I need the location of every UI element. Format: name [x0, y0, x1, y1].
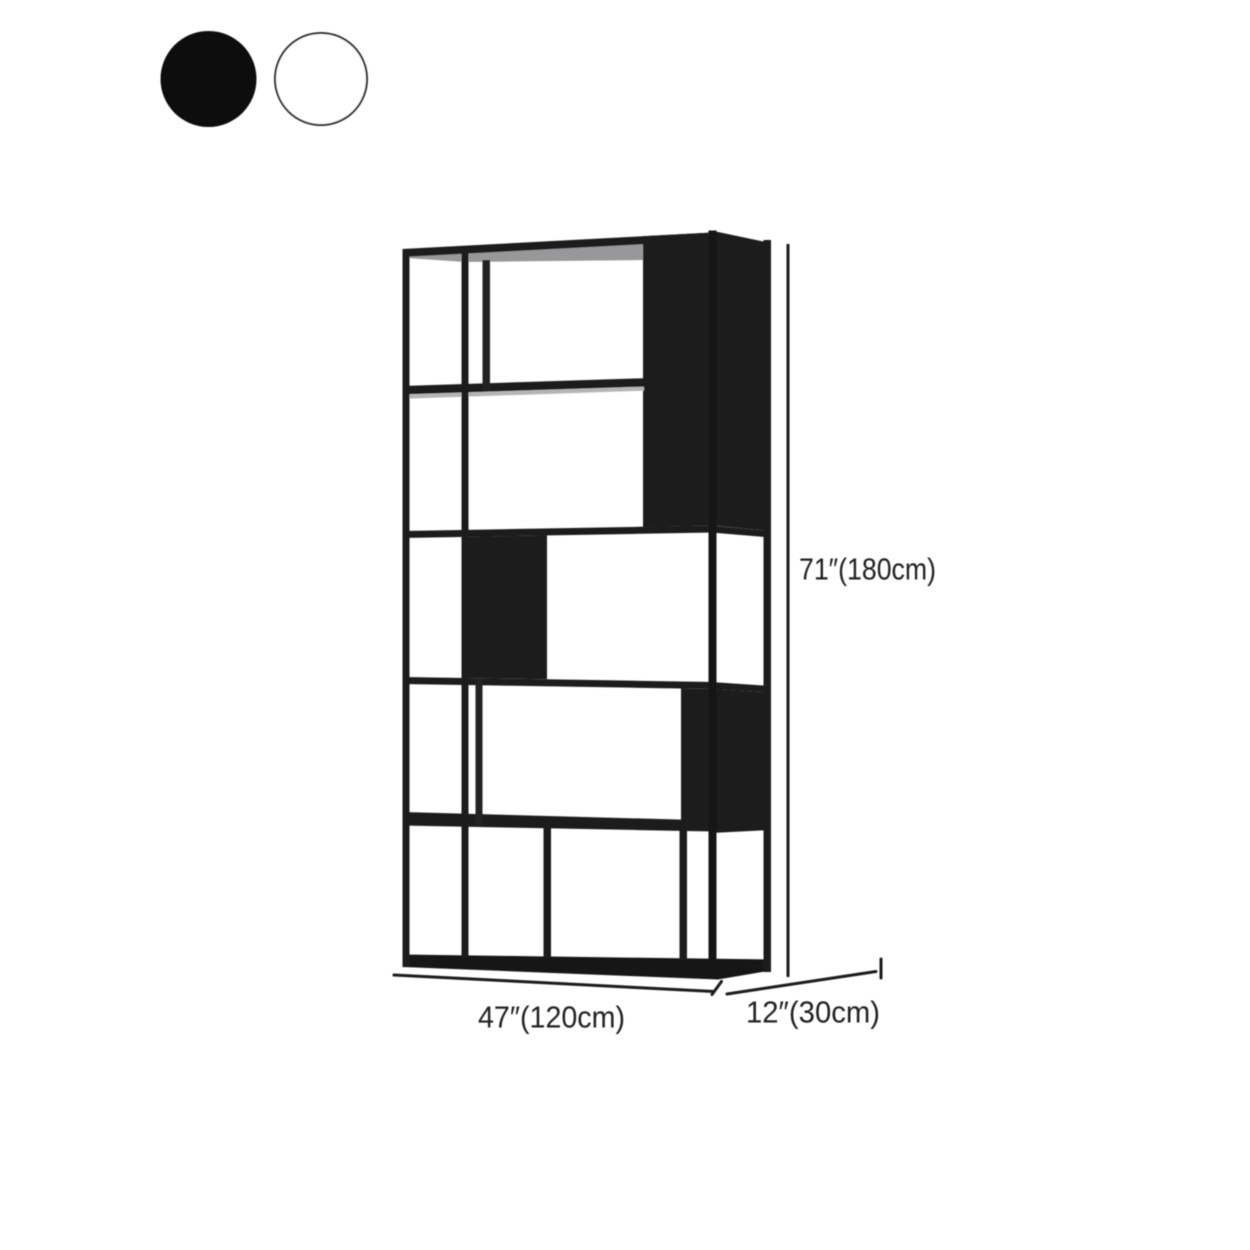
- svg-text:47″(120cm): 47″(120cm): [478, 1001, 625, 1035]
- svg-text:71″(180cm): 71″(180cm): [799, 553, 936, 587]
- svg-text:12″(30cm): 12″(30cm): [746, 996, 880, 1030]
